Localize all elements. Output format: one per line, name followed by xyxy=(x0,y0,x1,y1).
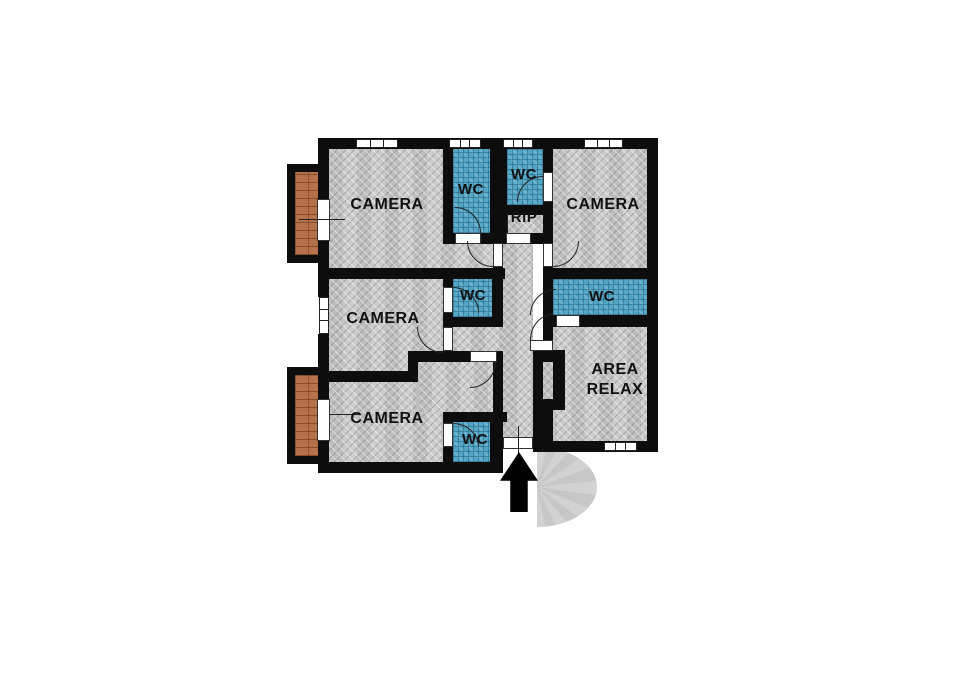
floor-plan: CAMERA WC WC RIP CAMERA CAMERA WC WC CAM… xyxy=(0,0,960,679)
wall-segment xyxy=(318,462,503,473)
room-label-camera-top-right: CAMERA xyxy=(543,196,663,213)
door-hall xyxy=(530,340,553,351)
window xyxy=(604,442,637,451)
wall-segment xyxy=(443,317,503,327)
door-camera-bottom xyxy=(470,351,497,362)
balcony-brick-bottom xyxy=(295,375,319,456)
entrance-arrow-icon xyxy=(500,452,538,512)
door-camera-middle xyxy=(443,327,453,351)
window xyxy=(356,139,398,148)
room-label-wc-middle: WC xyxy=(451,287,495,304)
balcony-wall xyxy=(287,255,329,263)
door-wc-right xyxy=(556,315,580,327)
door-leaf-line xyxy=(299,219,345,220)
wall-segment xyxy=(533,362,543,410)
room-label-wc-top-left: WC xyxy=(449,181,493,198)
floor-corridor xyxy=(503,238,533,437)
balcony-wall xyxy=(287,164,329,172)
wall-segment xyxy=(318,371,418,382)
balcony-wall xyxy=(287,367,295,464)
spiral-staircase xyxy=(537,447,597,527)
room-label-wc-bottom: WC xyxy=(453,431,497,448)
room-label-camera-top-left: CAMERA xyxy=(327,196,447,213)
window xyxy=(584,139,623,148)
wall-segment xyxy=(580,315,658,327)
wall-segment xyxy=(318,268,505,279)
door-camera-top-right xyxy=(543,243,553,267)
room-label-rip: RIP xyxy=(502,210,546,226)
door-camera-top-left xyxy=(493,243,503,267)
window xyxy=(449,139,481,148)
wall-segment xyxy=(533,441,658,452)
wall-segment xyxy=(443,279,453,287)
wall-segment xyxy=(443,447,453,462)
wall-segment xyxy=(533,410,553,441)
balcony-wall xyxy=(287,456,329,464)
room-label-wc-right: WC xyxy=(580,288,624,305)
wall-segment xyxy=(647,138,658,452)
balcony-brick-top xyxy=(295,172,319,255)
balcony-wall xyxy=(287,164,295,263)
room-label-wc-top-middle: WC xyxy=(502,166,546,183)
room-label-camera-middle: CAMERA xyxy=(323,310,443,327)
door-rip xyxy=(506,233,531,244)
room-label-area-relax: AREA RELAX xyxy=(565,358,665,402)
door-swing-arc xyxy=(530,289,556,315)
door-swing-arc xyxy=(530,314,553,340)
wall-segment xyxy=(543,268,658,279)
room-label-camera-bottom: CAMERA xyxy=(327,410,447,427)
window xyxy=(503,139,533,148)
